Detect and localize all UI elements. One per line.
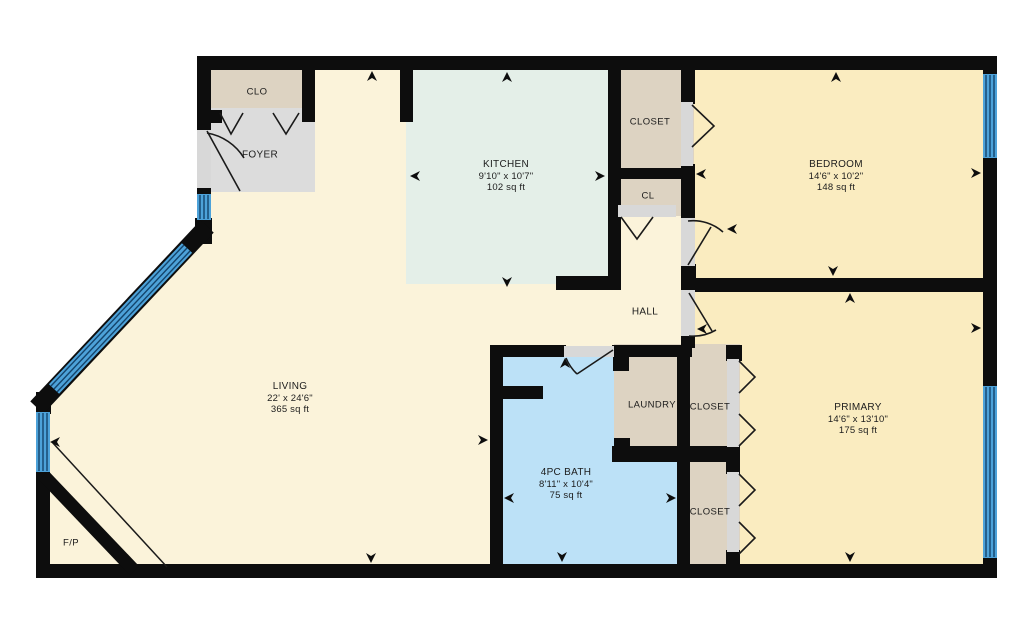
room-name: CLO xyxy=(247,86,268,98)
floor-plan: CLO FOYER KITCHEN 9'10" x 10'7" 102 sq f… xyxy=(0,0,1024,627)
floor-plan-drawing xyxy=(0,0,1024,627)
room-name: CLOSET xyxy=(690,401,730,413)
room-area: 365 sq ft xyxy=(267,404,313,416)
room-dims: 14'6" x 10'2" xyxy=(809,170,864,182)
room-area: 148 sq ft xyxy=(809,182,864,194)
room-label-bedroom: BEDROOM 14'6" x 10'2" 148 sq ft xyxy=(809,159,864,194)
room-dims: 9'10" x 10'7" xyxy=(479,170,534,182)
room-label-kitchen: KITCHEN 9'10" x 10'7" 102 sq ft xyxy=(479,159,534,194)
room-name: BEDROOM xyxy=(809,159,864,171)
room-label-primary: PRIMARY 14'6" x 13'10" 175 sq ft xyxy=(828,402,888,437)
room-dims: 8'11" x 10'4" xyxy=(539,478,593,490)
room-name: 4PC BATH xyxy=(539,467,593,479)
room-area: 175 sq ft xyxy=(828,425,888,437)
room-name: KITCHEN xyxy=(479,159,534,171)
room-name: PRIMARY xyxy=(828,402,888,414)
floors xyxy=(36,56,997,578)
room-label-living: LIVING 22' x 24'6" 365 sq ft xyxy=(267,381,313,416)
room-area: 102 sq ft xyxy=(479,182,534,194)
room-name: F/P xyxy=(63,537,79,549)
room-label-cl: CL xyxy=(642,190,655,202)
room-label-foyer: FOYER xyxy=(242,149,278,161)
room-name: CL xyxy=(642,190,655,202)
room-label-closet-primary-lower: CLOSET xyxy=(690,506,730,518)
room-label-closet-primary-upper: CLOSET xyxy=(690,401,730,413)
room-name: CLOSET xyxy=(630,116,670,128)
room-label-bath: 4PC BATH 8'11" x 10'4" 75 sq ft xyxy=(539,467,593,502)
room-label-closet-bedroom: CLOSET xyxy=(630,116,670,128)
room-name: FOYER xyxy=(242,149,278,161)
room-area: 75 sq ft xyxy=(539,490,593,502)
room-name: CLOSET xyxy=(690,506,730,518)
room-dims: 14'6" x 13'10" xyxy=(828,413,888,425)
room-label-hall: HALL xyxy=(632,306,658,318)
room-label-clo: CLO xyxy=(247,86,268,98)
room-label-fireplace: F/P xyxy=(63,537,79,549)
room-dims: 22' x 24'6" xyxy=(267,392,313,404)
room-label-laundry: LAUNDRY xyxy=(628,399,676,411)
room-name: HALL xyxy=(632,306,658,318)
room-name: LAUNDRY xyxy=(628,399,676,411)
room-name: LIVING xyxy=(267,381,313,393)
